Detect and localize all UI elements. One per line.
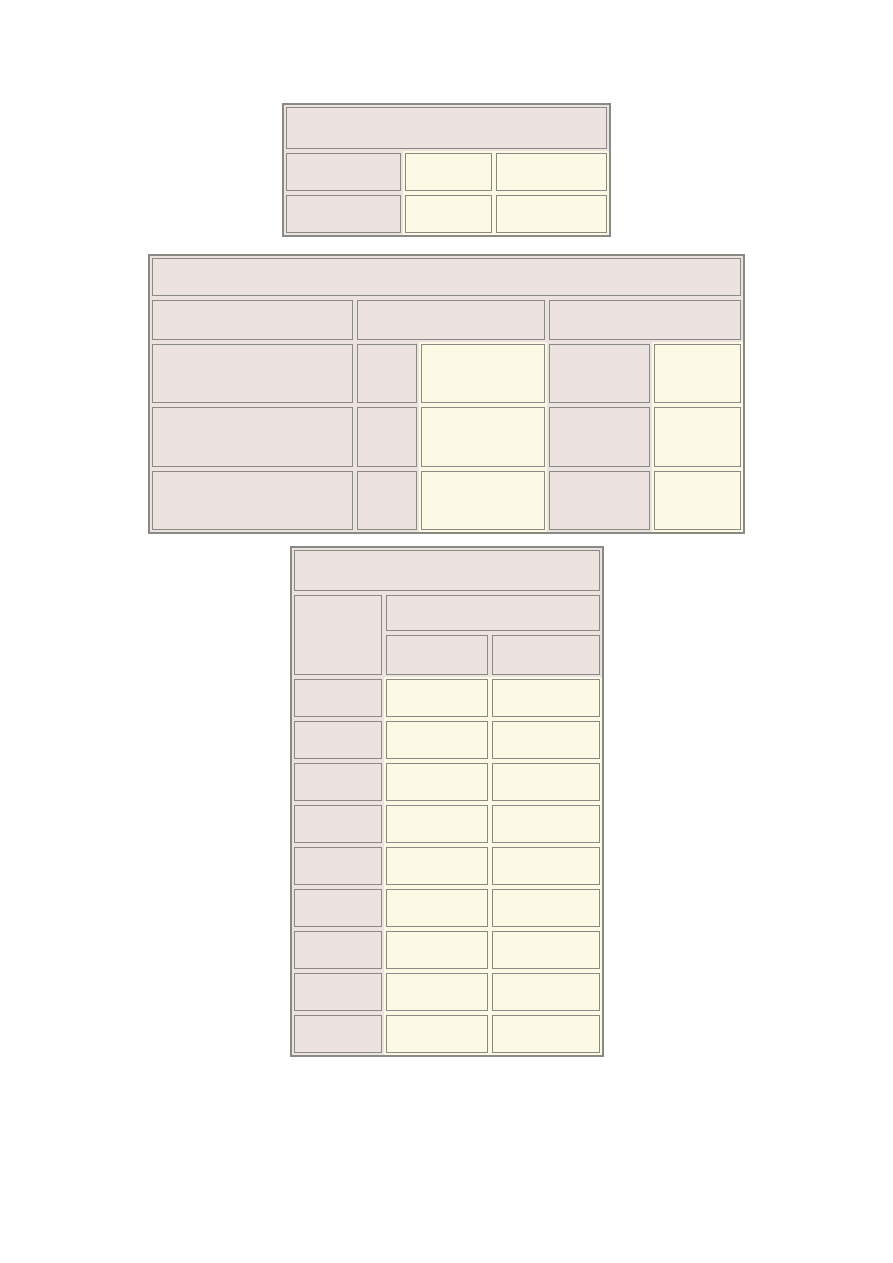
data-cell (490, 1013, 602, 1055)
data-cell (384, 761, 490, 803)
data-cell (384, 1013, 490, 1055)
data-cell (490, 929, 602, 971)
data-cell (490, 761, 602, 803)
data-cell (490, 971, 602, 1013)
data-cell (384, 803, 490, 845)
data-cell (384, 719, 490, 761)
header-cell (355, 342, 419, 405)
bottom-table-row-7 (292, 845, 602, 887)
data-cell (490, 719, 602, 761)
header-cell (384, 593, 602, 633)
header-cell (547, 298, 743, 342)
data-cell (494, 193, 609, 235)
middle-table-row-1 (150, 298, 743, 342)
top-table-row-1 (284, 151, 609, 193)
bottom-table-row-8 (292, 887, 602, 929)
data-cell (403, 193, 494, 235)
data-cell (494, 151, 609, 193)
top-table-grid (282, 103, 611, 237)
header-cell (150, 298, 355, 342)
data-cell (652, 342, 743, 405)
header-cell (355, 469, 419, 532)
data-cell (384, 887, 490, 929)
data-cell (384, 929, 490, 971)
bottom-table (290, 546, 604, 1057)
middle-table-row-0 (150, 256, 743, 298)
header-cell (384, 633, 490, 677)
middle-table-row-2 (150, 342, 743, 405)
header-cell (292, 719, 384, 761)
bottom-table-row-5 (292, 761, 602, 803)
header-cell (547, 405, 652, 469)
bottom-table-row-1 (292, 593, 602, 633)
header-cell (292, 971, 384, 1013)
data-cell (384, 971, 490, 1013)
bottom-table-row-4 (292, 719, 602, 761)
data-cell (652, 405, 743, 469)
top-table (282, 103, 611, 237)
header-cell (150, 469, 355, 532)
bottom-table-row-3 (292, 677, 602, 719)
header-cell (150, 405, 355, 469)
data-cell (419, 405, 547, 469)
data-cell (490, 845, 602, 887)
bottom-table-row-6 (292, 803, 602, 845)
data-cell (384, 677, 490, 719)
data-cell (384, 845, 490, 887)
top-table-row-0 (284, 105, 609, 151)
header-cell (284, 105, 609, 151)
header-cell (292, 1013, 384, 1055)
header-cell (292, 845, 384, 887)
bottom-table-row-0 (292, 548, 602, 593)
header-cell (292, 677, 384, 719)
header-cell (150, 342, 355, 405)
data-cell (419, 342, 547, 405)
header-cell (355, 298, 547, 342)
header-cell (284, 151, 403, 193)
header-cell (490, 633, 602, 677)
header-cell (547, 342, 652, 405)
middle-table-row-3 (150, 405, 743, 469)
header-cell (292, 548, 602, 593)
header-cell (150, 256, 743, 298)
middle-table-grid (148, 254, 745, 534)
data-cell (490, 803, 602, 845)
bottom-table-grid (290, 546, 604, 1057)
header-cell (292, 803, 384, 845)
bottom-table-row-11 (292, 1013, 602, 1055)
header-cell (284, 193, 403, 235)
header-cell (292, 929, 384, 971)
document-page (0, 0, 893, 1263)
data-cell (403, 151, 494, 193)
header-cell (292, 593, 384, 677)
middle-table (148, 254, 745, 534)
header-cell (355, 405, 419, 469)
top-table-row-2 (284, 193, 609, 235)
data-cell (652, 469, 743, 532)
data-cell (490, 677, 602, 719)
header-cell (292, 887, 384, 929)
middle-table-row-4 (150, 469, 743, 532)
header-cell (547, 469, 652, 532)
data-cell (419, 469, 547, 532)
data-cell (490, 887, 602, 929)
bottom-table-row-9 (292, 929, 602, 971)
header-cell (292, 761, 384, 803)
bottom-table-row-10 (292, 971, 602, 1013)
